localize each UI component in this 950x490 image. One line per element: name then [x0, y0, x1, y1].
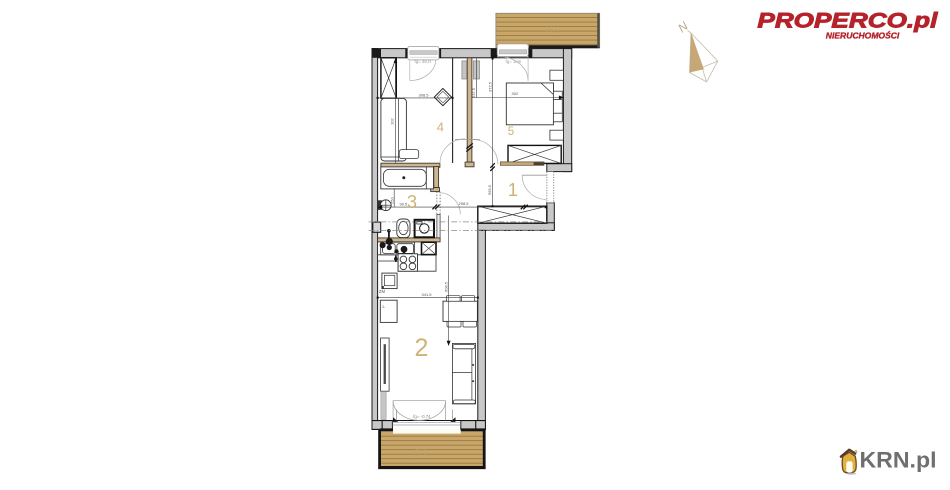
- svg-text:ZM: ZM: [379, 289, 386, 294]
- svg-text:02: 02: [546, 22, 560, 36]
- svg-text:599.5: 599.5: [487, 184, 492, 195]
- svg-text:2: 2: [415, 334, 429, 362]
- svg-text:302: 302: [512, 91, 519, 96]
- svg-text:NIERUCHOMOŚCI: NIERUCHOMOŚCI: [826, 30, 900, 41]
- svg-text:308.5: 308.5: [419, 92, 430, 97]
- svg-text:341.5: 341.5: [422, 292, 433, 297]
- svg-text:PROPERCO.pl: PROPERCO.pl: [757, 10, 938, 33]
- svg-text:4: 4: [437, 120, 444, 135]
- svg-text:102: 102: [389, 118, 394, 125]
- svg-text:fg= -0.74: fg= -0.74: [413, 414, 431, 419]
- svg-text:237.5: 237.5: [471, 87, 476, 98]
- svg-text:fg= 48.H: fg= 48.H: [415, 59, 432, 64]
- svg-text:608.5: 608.5: [444, 281, 449, 292]
- svg-text:372.5: 372.5: [487, 81, 492, 92]
- svg-text:1: 1: [508, 179, 518, 200]
- svg-text:3: 3: [407, 192, 417, 212]
- svg-text:01: 01: [414, 446, 428, 461]
- svg-text:298.5: 298.5: [459, 201, 470, 206]
- svg-text:5: 5: [508, 126, 514, 138]
- svg-text:250: 250: [389, 197, 394, 204]
- svg-text:KRN.pl: KRN.pl: [860, 448, 937, 473]
